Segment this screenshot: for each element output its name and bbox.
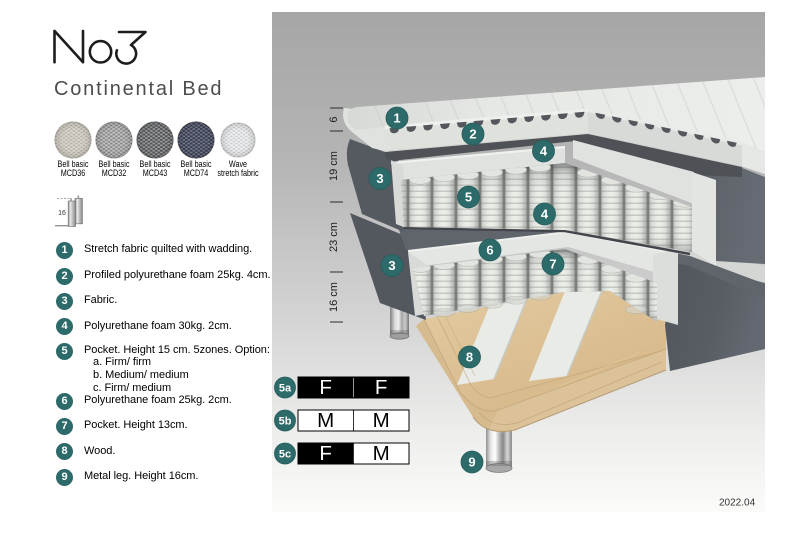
svg-text:16 cm: 16 cm	[328, 282, 340, 312]
svg-text:4: 4	[541, 207, 549, 222]
svg-text:5a: 5a	[279, 382, 292, 394]
svg-text:19 cm: 19 cm	[328, 151, 340, 181]
svg-text:1: 1	[393, 111, 400, 126]
svg-text:F: F	[319, 376, 332, 399]
svg-text:6: 6	[486, 243, 493, 258]
svg-text:9: 9	[468, 455, 475, 470]
svg-text:6: 6	[328, 116, 340, 122]
svg-text:2022.04: 2022.04	[719, 498, 756, 509]
svg-text:M: M	[373, 442, 390, 465]
svg-text:F: F	[319, 442, 332, 465]
svg-text:5: 5	[465, 190, 472, 205]
svg-text:4: 4	[540, 144, 548, 159]
svg-text:F: F	[375, 376, 388, 399]
svg-text:2: 2	[469, 127, 476, 142]
svg-text:5c: 5c	[279, 448, 291, 460]
svg-text:3: 3	[388, 258, 395, 273]
svg-text:7: 7	[549, 257, 556, 272]
svg-text:3: 3	[376, 171, 383, 186]
svg-text:M: M	[373, 409, 390, 432]
svg-text:8: 8	[466, 350, 473, 365]
svg-text:M: M	[317, 409, 334, 432]
svg-text:5b: 5b	[279, 415, 292, 427]
svg-text:23 cm: 23 cm	[328, 222, 340, 252]
